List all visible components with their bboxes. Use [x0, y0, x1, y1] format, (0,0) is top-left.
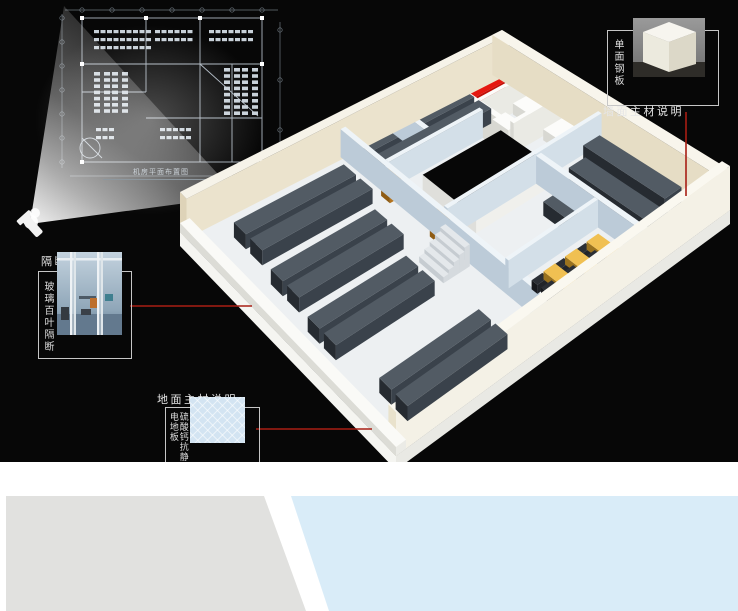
floor-material-label: 硫酸钙抗静电地板 [168, 412, 188, 462]
footer-shape-blue [291, 496, 738, 611]
design-board-page: { "blueprint": { "caption": "机房平面布置图", "… [0, 0, 738, 611]
partition-material-label: 玻璃百叶隔断 [42, 281, 53, 353]
wall-material-photo [633, 18, 705, 77]
wall-material-label: 单面钢板 [612, 39, 623, 87]
dark-presentation-canvas: 机房平面布置图 [0, 0, 738, 462]
wall-callout-title: 墙面主材说明 [603, 103, 684, 119]
footer-decoration [0, 462, 738, 611]
footer-shape-gray [6, 496, 306, 611]
partition-material-photo [57, 252, 122, 335]
floor-material-sample [190, 397, 245, 443]
